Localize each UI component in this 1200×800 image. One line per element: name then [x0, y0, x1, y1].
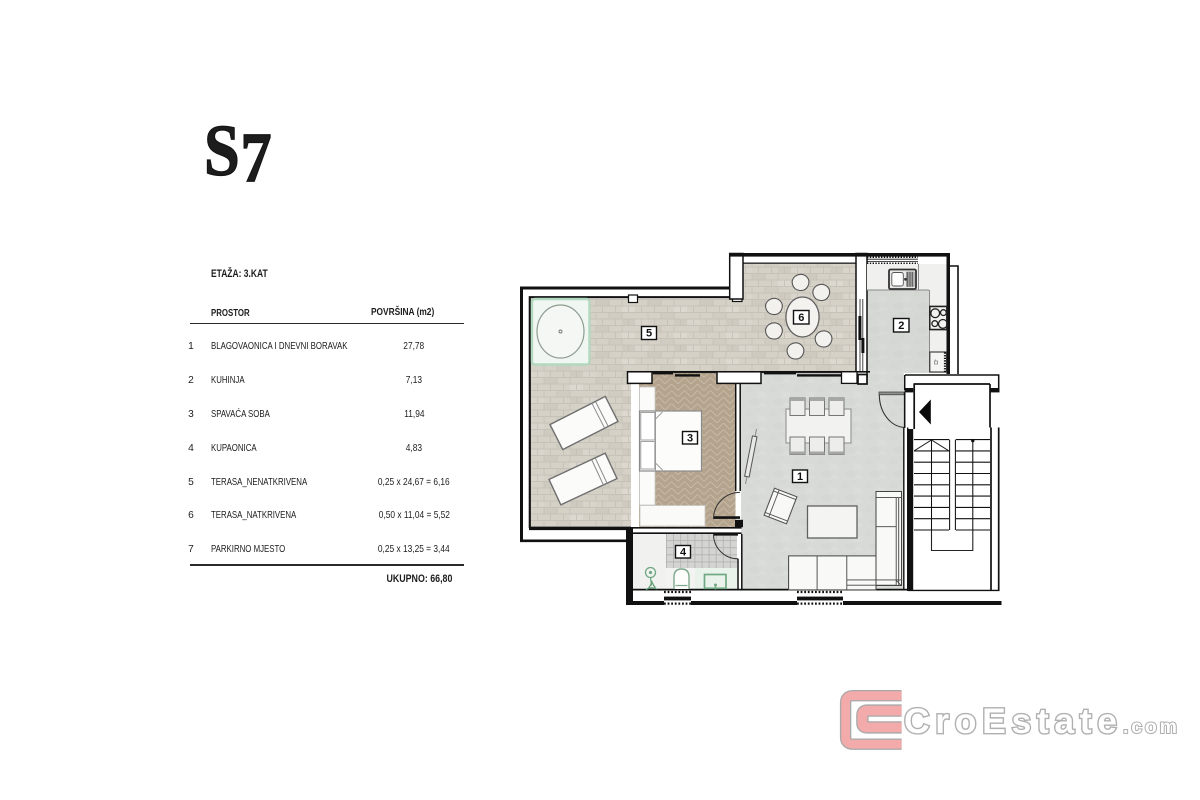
svg-text:1: 1: [797, 471, 803, 483]
svg-text:5: 5: [646, 328, 652, 340]
svg-text:2: 2: [898, 320, 904, 332]
svg-text:.com: .com: [1123, 716, 1178, 738]
svg-text:4: 4: [680, 546, 687, 558]
svg-text:6: 6: [798, 312, 804, 324]
svg-text:CroEstate: CroEstate: [904, 701, 1122, 741]
svg-text:3: 3: [687, 432, 693, 444]
